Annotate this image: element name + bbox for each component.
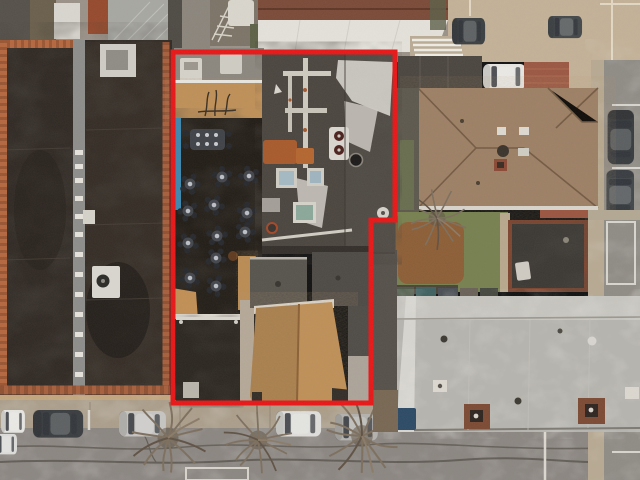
photo-grain-overlay (0, 0, 640, 480)
aerial-photo-canvas (0, 0, 640, 480)
aerial-photo (0, 0, 640, 480)
